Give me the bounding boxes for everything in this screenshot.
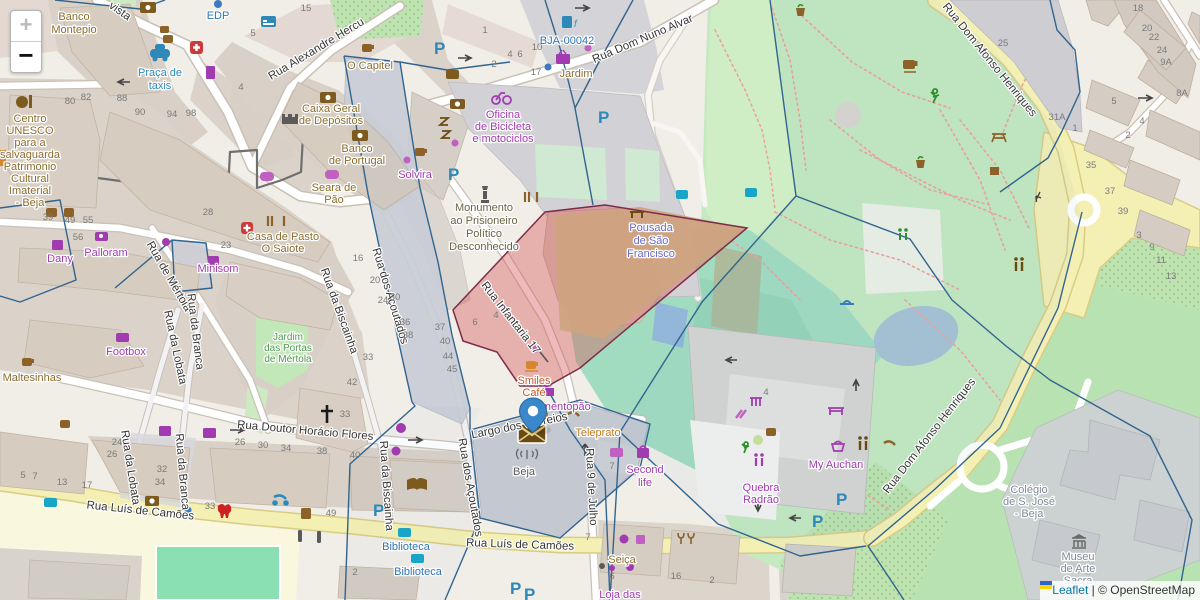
svg-text:7: 7 — [585, 532, 590, 543]
svg-text:P: P — [510, 579, 521, 598]
svg-text:P: P — [836, 490, 847, 509]
svg-text:38: 38 — [403, 330, 414, 341]
svg-text:Maltesinhas: Maltesinhas — [3, 372, 62, 384]
svg-text:Beja: Beja — [513, 466, 536, 478]
svg-text:Quebra: Quebra — [743, 482, 781, 494]
svg-text:P: P — [448, 165, 459, 184]
svg-text:33: 33 — [205, 501, 216, 512]
svg-text:Centro: Centro — [13, 113, 46, 125]
svg-text:30: 30 — [258, 440, 269, 451]
svg-text:6: 6 — [517, 49, 522, 60]
svg-text:2: 2 — [352, 567, 357, 578]
svg-text:10: 10 — [532, 42, 543, 53]
svg-text:Casa de Pasto: Casa de Pasto — [247, 231, 319, 243]
svg-text:taxis: taxis — [149, 80, 172, 92]
svg-text:88: 88 — [117, 93, 128, 104]
svg-text:Seara de: Seara de — [312, 182, 357, 194]
svg-text:13: 13 — [57, 477, 68, 488]
svg-text:de Depósitos: de Depósitos — [299, 115, 364, 127]
svg-text:Cultural: Cultural — [11, 173, 49, 185]
svg-text:P: P — [524, 585, 535, 600]
svg-text:Caixa Geral: Caixa Geral — [302, 103, 360, 115]
svg-text:16: 16 — [671, 571, 682, 582]
svg-text:28: 28 — [203, 207, 214, 218]
svg-text:40: 40 — [440, 336, 451, 347]
svg-text:4: 4 — [507, 49, 512, 60]
svg-text:22: 22 — [1149, 32, 1160, 43]
svg-text:de Mértola: de Mértola — [264, 354, 312, 365]
svg-text:17: 17 — [82, 480, 93, 491]
svg-text:Dany: Dany — [47, 253, 73, 265]
svg-text:2: 2 — [1125, 130, 1130, 141]
svg-text:Colégio: Colégio — [1010, 484, 1047, 496]
svg-text:13: 13 — [1166, 271, 1177, 282]
svg-text:7: 7 — [609, 461, 614, 472]
svg-text:1: 1 — [1072, 123, 1077, 134]
svg-text:Café: Café — [522, 387, 545, 399]
svg-text:45: 45 — [447, 364, 458, 375]
svg-text:Montepio: Montepio — [51, 24, 96, 36]
svg-text:9A: 9A — [1160, 57, 1172, 68]
svg-text:5: 5 — [1111, 96, 1116, 107]
svg-text:15: 15 — [301, 3, 312, 14]
svg-text:Jardim: Jardim — [273, 332, 303, 343]
svg-text:Praça de: Praça de — [138, 67, 182, 79]
svg-text:30: 30 — [390, 292, 401, 303]
svg-text:38: 38 — [317, 446, 328, 457]
svg-text:ao Prisioneiro: ao Prisioneiro — [450, 215, 517, 227]
svg-text:de S. José: de S. José — [1003, 496, 1055, 508]
svg-text:5: 5 — [20, 470, 25, 481]
svg-text:para a: para a — [14, 137, 46, 149]
svg-text:Footbox: Footbox — [106, 346, 146, 358]
svg-text:37: 37 — [435, 322, 446, 333]
svg-text:Pousada: Pousada — [629, 222, 673, 234]
svg-text:das Portas: das Portas — [264, 343, 312, 354]
svg-text:6: 6 — [472, 317, 477, 328]
svg-text:34: 34 — [155, 477, 166, 488]
svg-text:de Portugal: de Portugal — [329, 155, 385, 167]
svg-text:salvaguarda: salvaguarda — [0, 149, 61, 161]
svg-text:42: 42 — [347, 377, 358, 388]
svg-text:Teleprato: Teleprato — [575, 427, 620, 439]
svg-text:24: 24 — [112, 437, 123, 448]
svg-text:Loja das: Loja das — [599, 589, 641, 600]
svg-text:O Saiote: O Saiote — [262, 243, 305, 255]
svg-text:18: 18 — [1133, 3, 1144, 14]
svg-text:My Auchan: My Auchan — [809, 459, 863, 471]
svg-text:94: 94 — [167, 109, 178, 120]
svg-text:90: 90 — [135, 107, 146, 118]
svg-text:EDP: EDP — [207, 10, 230, 22]
svg-text:Político: Político — [466, 228, 502, 240]
svg-text:Solvira: Solvira — [398, 169, 433, 181]
svg-text:49: 49 — [65, 215, 76, 226]
svg-text:6: 6 — [609, 571, 614, 582]
svg-text:8A: 8A — [1176, 88, 1188, 99]
svg-text:Banco: Banco — [58, 11, 89, 23]
svg-text:16: 16 — [353, 253, 364, 264]
svg-text:4: 4 — [493, 310, 498, 321]
svg-text:5: 5 — [250, 28, 255, 39]
svg-text:Smiles: Smiles — [517, 375, 551, 387]
svg-text:31A: 31A — [1049, 112, 1067, 123]
svg-text:Biblioteca: Biblioteca — [394, 566, 443, 578]
svg-text:49: 49 — [326, 508, 337, 519]
svg-text:39: 39 — [43, 212, 54, 223]
svg-text:34: 34 — [281, 443, 292, 454]
svg-text:26: 26 — [235, 437, 246, 448]
svg-text:Imaterial: Imaterial — [9, 185, 51, 197]
svg-text:Francisco: Francisco — [627, 248, 675, 260]
svg-text:P: P — [434, 39, 445, 58]
svg-text:25: 25 — [998, 38, 1009, 49]
svg-text:de São: de São — [634, 235, 669, 247]
svg-text:35: 35 — [1086, 160, 1097, 171]
svg-text:UNESCO: UNESCO — [6, 125, 54, 137]
svg-text:44: 44 — [443, 351, 454, 362]
svg-text:82: 82 — [81, 92, 92, 103]
svg-text:1: 1 — [482, 25, 487, 36]
svg-text:33: 33 — [340, 409, 351, 420]
svg-text:P: P — [812, 512, 823, 531]
svg-text:39: 39 — [1118, 206, 1129, 217]
svg-text:e motociclos: e motociclos — [472, 133, 534, 145]
svg-text:BJA-00042: BJA-00042 — [540, 35, 594, 47]
svg-text:11: 11 — [1156, 255, 1166, 266]
svg-text:32: 32 — [157, 464, 168, 475]
svg-text:Seiça: Seiça — [608, 554, 636, 566]
svg-text:56: 56 — [73, 232, 84, 243]
svg-text:O Capitel: O Capitel — [347, 60, 393, 72]
svg-text:4: 4 — [1139, 116, 1144, 127]
svg-text:Banco: Banco — [341, 143, 372, 155]
svg-text:P: P — [598, 108, 609, 127]
svg-text:4: 4 — [763, 387, 768, 398]
svg-text:Desconhecido: Desconhecido — [449, 241, 519, 253]
svg-text:Museu: Museu — [1061, 551, 1094, 563]
svg-text:17: 17 — [531, 67, 542, 78]
svg-text:4: 4 — [238, 82, 243, 93]
svg-text:Radrão: Radrão — [743, 494, 779, 506]
svg-text:Second: Second — [626, 464, 663, 476]
svg-text:20: 20 — [370, 275, 381, 286]
svg-text:Oficina: Oficina — [486, 109, 521, 121]
svg-text:26: 26 — [107, 449, 118, 460]
svg-text:Jardim: Jardim — [559, 68, 592, 80]
svg-text:- Beja: - Beja — [16, 197, 46, 209]
svg-text:de Bicicleta: de Bicicleta — [475, 121, 532, 133]
svg-text:7: 7 — [32, 471, 37, 482]
svg-text:Palloram: Palloram — [84, 247, 127, 259]
svg-text:36: 36 — [400, 317, 411, 328]
svg-text:Monumento: Monumento — [455, 202, 513, 214]
svg-text:Pão: Pão — [324, 194, 344, 206]
svg-text:de Arte: de Arte — [1061, 563, 1096, 575]
svg-text:55: 55 — [83, 215, 94, 226]
svg-text:2: 2 — [491, 59, 496, 70]
svg-text:Minisom: Minisom — [198, 263, 239, 275]
svg-text:Biblioteca: Biblioteca — [382, 541, 431, 553]
svg-text:23: 23 — [221, 240, 232, 251]
svg-text:40: 40 — [350, 450, 361, 461]
svg-text:life: life — [638, 477, 652, 489]
svg-text:24: 24 — [1157, 45, 1168, 56]
svg-text:3: 3 — [1136, 230, 1141, 241]
svg-text:80: 80 — [65, 96, 76, 107]
svg-text:Patrimonio: Patrimonio — [4, 161, 57, 173]
svg-text:37: 37 — [1105, 186, 1116, 197]
svg-text:98: 98 — [186, 108, 197, 119]
svg-text:33: 33 — [363, 352, 374, 363]
svg-text:2: 2 — [709, 575, 714, 586]
svg-text:- Beja: - Beja — [1015, 508, 1045, 520]
svg-text:9: 9 — [1149, 242, 1154, 253]
svg-text:24: 24 — [378, 295, 389, 306]
